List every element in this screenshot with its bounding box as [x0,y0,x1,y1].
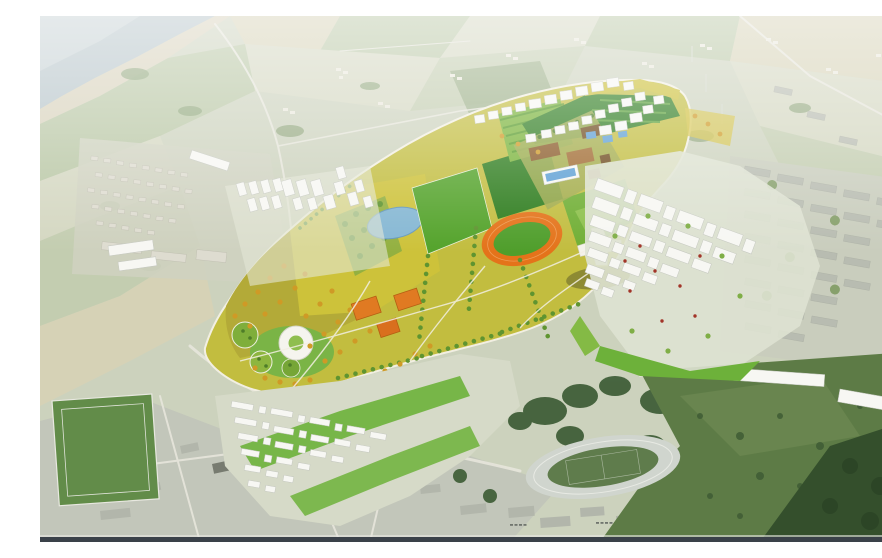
haze-overlay [40,16,882,542]
aerial-rendering: Bird's-eye architectural rendering of an… [40,16,882,542]
bottom-bar [40,537,882,542]
bottom-highlight [40,535,882,537]
